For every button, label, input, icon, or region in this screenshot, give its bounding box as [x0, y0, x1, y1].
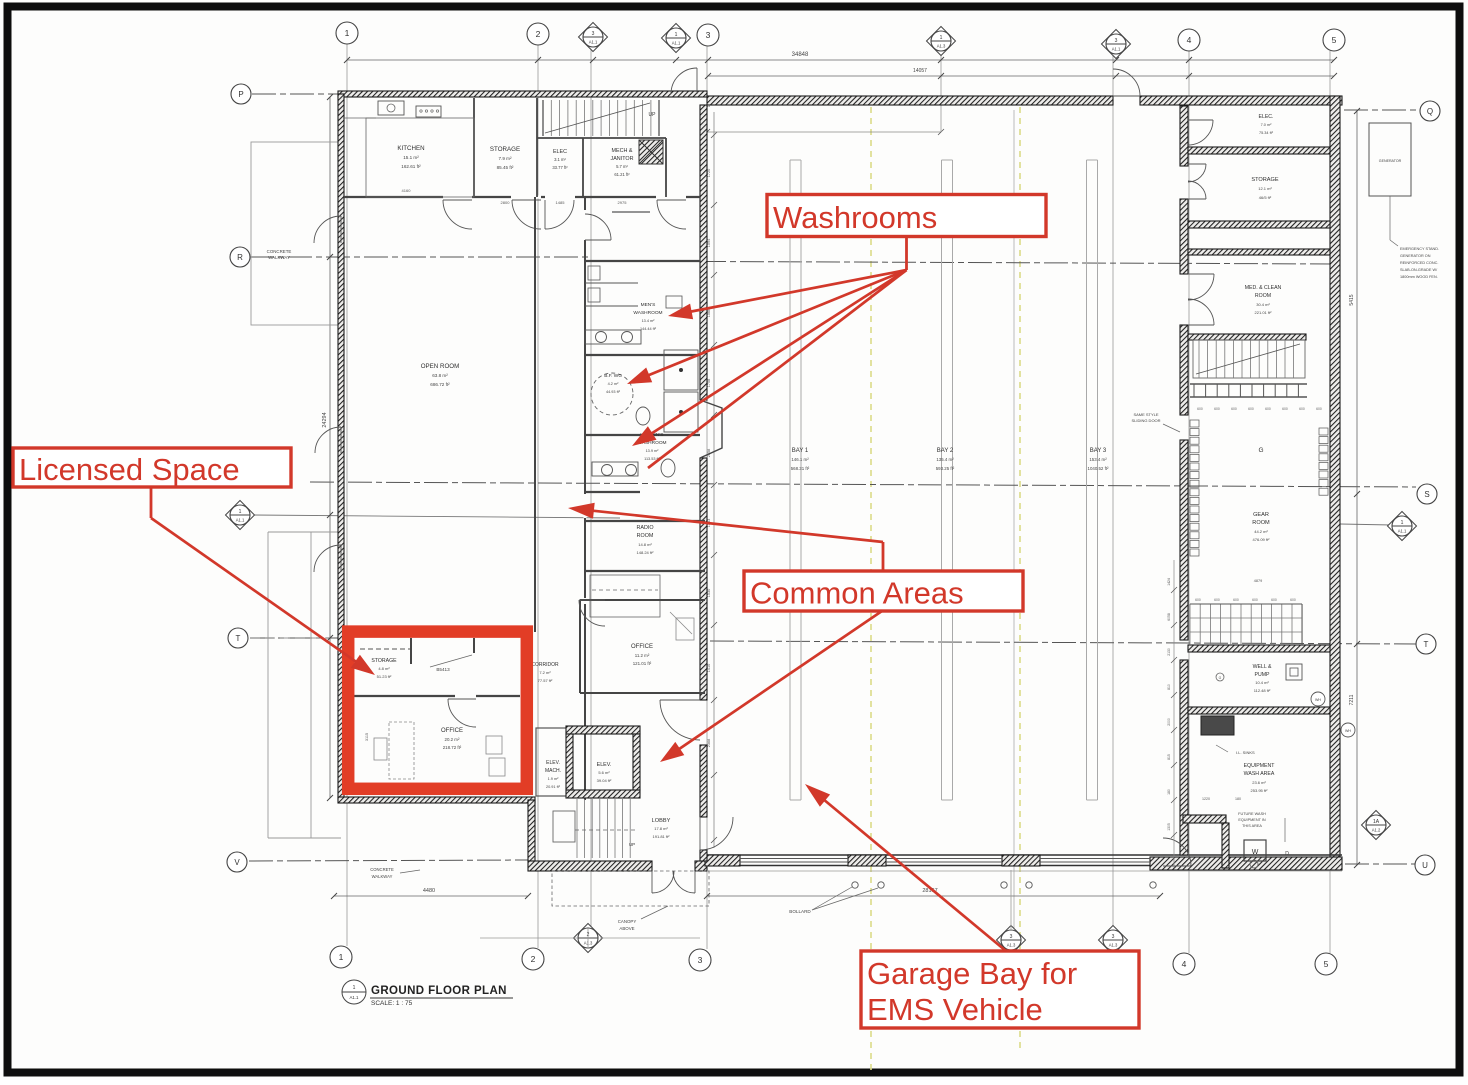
svg-text:75.34 ft²: 75.34 ft² [1259, 131, 1274, 135]
svg-text:1220: 1220 [1202, 797, 1210, 801]
svg-text:1485: 1485 [556, 200, 566, 205]
svg-text:BAY 2: BAY 2 [937, 448, 954, 454]
svg-text:1305: 1305 [1167, 823, 1171, 831]
svg-text:A1.3: A1.3 [1007, 943, 1016, 948]
svg-text:44.93 ft²: 44.93 ft² [606, 390, 621, 394]
svg-text:1720: 1720 [707, 169, 711, 177]
svg-text:600: 600 [1316, 407, 1322, 411]
svg-text:T: T [1424, 640, 1429, 649]
svg-text:BOLLARD: BOLLARD [789, 909, 811, 914]
svg-text:CONCRETE: CONCRETE [370, 867, 394, 872]
svg-text:7.2 m²: 7.2 m² [539, 670, 551, 675]
svg-text:44.2 m²: 44.2 m² [1254, 529, 1268, 534]
svg-text:11.2 m²: 11.2 m² [635, 653, 650, 658]
svg-text:P: P [238, 90, 243, 99]
svg-text:A1.3: A1.3 [937, 44, 946, 49]
svg-text:A1.1: A1.1 [1112, 47, 1121, 52]
svg-text:CORRIDOR: CORRIDOR [531, 662, 559, 668]
svg-text:WH: WH [1315, 698, 1321, 702]
svg-text:1410: 1410 [707, 664, 711, 672]
svg-text:4879: 4879 [1254, 579, 1262, 583]
svg-text:G: G [1258, 447, 1263, 454]
svg-text:63.8 m²: 63.8 m² [432, 373, 448, 378]
svg-text:1: 1 [345, 28, 350, 38]
svg-text:218.72 ft²: 218.72 ft² [443, 745, 462, 750]
svg-text:1068: 1068 [707, 309, 711, 317]
svg-text:WASHROOM: WASHROOM [633, 310, 662, 316]
svg-text:4.8 m²: 4.8 m² [378, 666, 390, 671]
svg-text:1040.52 ft²: 1040.52 ft² [1088, 466, 1110, 471]
svg-text:5.7 m²: 5.7 m² [616, 164, 628, 169]
svg-text:600: 600 [1214, 598, 1220, 602]
svg-text:ELEV.: ELEV. [546, 760, 560, 766]
svg-text:OFFICE: OFFICE [631, 644, 653, 650]
svg-text:180: 180 [1167, 789, 1171, 795]
svg-text:135.4 m²: 135.4 m² [936, 457, 954, 462]
svg-text:ELEC: ELEC [553, 149, 567, 155]
svg-text:SAME STYLE: SAME STYLE [1133, 412, 1158, 417]
svg-text:T: T [236, 634, 241, 643]
svg-text:GENERATOR ON: GENERATOR ON [1400, 254, 1431, 258]
svg-text:WH: WH [1345, 729, 1351, 733]
svg-text:Garage Bay for: Garage Bay for [867, 956, 1077, 991]
svg-text:WELL &: WELL & [1253, 664, 1272, 670]
svg-text:1: 1 [239, 509, 242, 515]
svg-text:RADIO: RADIO [636, 525, 653, 531]
svg-text:34848: 34848 [792, 52, 809, 58]
svg-text:810: 810 [1167, 684, 1171, 690]
svg-text:1: 1 [1401, 520, 1404, 526]
svg-text:2368: 2368 [707, 739, 711, 747]
svg-text:2: 2 [531, 954, 536, 964]
svg-text:B5413: B5413 [436, 667, 450, 672]
svg-text:815: 815 [1167, 754, 1171, 760]
svg-text:1708: 1708 [707, 379, 711, 387]
svg-text:CONCRETE: CONCRETE [267, 249, 292, 254]
svg-text:568.31 ft²: 568.31 ft² [791, 466, 810, 471]
svg-text:I.L. SINKS: I.L. SINKS [1236, 750, 1255, 755]
svg-text:1424: 1424 [1167, 578, 1171, 586]
svg-text:EQUIPMENT: EQUIPMENT [1244, 763, 1276, 769]
svg-text:600: 600 [1252, 598, 1258, 602]
svg-text:15.1 m²: 15.1 m² [403, 155, 419, 160]
svg-text:STORAGE: STORAGE [371, 658, 397, 664]
svg-text:3.1 m²: 3.1 m² [554, 157, 566, 162]
svg-text:61.21 ft²: 61.21 ft² [614, 172, 630, 177]
svg-text:V: V [234, 858, 240, 867]
svg-text:5: 5 [1324, 959, 1329, 969]
svg-text:148.24 ft²: 148.24 ft² [637, 550, 655, 555]
svg-text:5.6 m²: 5.6 m² [598, 770, 610, 775]
svg-text:EQUIPMENT IN: EQUIPMENT IN [1238, 818, 1266, 822]
svg-text:7.9 m²: 7.9 m² [498, 156, 511, 161]
svg-text:1A: 1A [1373, 819, 1380, 825]
svg-text:BAY 1: BAY 1 [792, 448, 809, 454]
svg-text:3: 3 [1115, 38, 1118, 44]
svg-text:600: 600 [1214, 407, 1220, 411]
svg-text:2975: 2975 [618, 200, 628, 205]
svg-text:600: 600 [1299, 407, 1305, 411]
svg-text:REINFORCED CONC.: REINFORCED CONC. [1400, 261, 1438, 265]
svg-text:121.01 ft²: 121.01 ft² [633, 661, 652, 666]
svg-text:3: 3 [592, 31, 595, 37]
svg-text:13.9 m²: 13.9 m² [646, 449, 660, 453]
svg-text:OFFICE: OFFICE [441, 728, 463, 734]
svg-text:600: 600 [1271, 598, 1277, 602]
svg-text:THIS AREA: THIS AREA [1242, 824, 1262, 828]
svg-text:1: 1 [339, 952, 344, 962]
svg-text:OPEN ROOM: OPEN ROOM [421, 363, 460, 370]
svg-text:23.6 m²: 23.6 m² [1252, 780, 1266, 785]
svg-text:A1.1: A1.1 [236, 518, 245, 523]
svg-text:KITCHEN: KITCHEN [397, 145, 424, 152]
svg-text:1530: 1530 [707, 589, 711, 597]
svg-text:BAY 3: BAY 3 [1090, 448, 1107, 454]
svg-text:SCALE: 1 : 75: SCALE: 1 : 75 [371, 1000, 413, 1007]
svg-text:2: 2 [536, 29, 541, 39]
svg-text:SLAB-ON-GRADE W/: SLAB-ON-GRADE W/ [1400, 268, 1438, 272]
svg-text:7.0 m²: 7.0 m² [1261, 123, 1272, 127]
svg-text:ROOM: ROOM [637, 533, 654, 539]
svg-text:A1.1: A1.1 [589, 40, 598, 45]
svg-text:SLIDING DOOR: SLIDING DOOR [1131, 418, 1160, 423]
svg-text:14.8 m²: 14.8 m² [638, 542, 652, 547]
svg-text:39.04 ft²: 39.04 ft² [597, 778, 612, 783]
svg-text:Washrooms: Washrooms [773, 200, 937, 235]
svg-text:B.F. WC: B.F. WC [604, 373, 622, 379]
svg-text:JANITOR: JANITOR [611, 156, 634, 162]
svg-text:U: U [1422, 861, 1428, 870]
svg-text:4: 4 [1187, 35, 1192, 45]
svg-text:180: 180 [1235, 797, 1241, 801]
svg-text:221.01 ft²: 221.01 ft² [1255, 310, 1273, 315]
svg-text:600: 600 [1290, 598, 1296, 602]
svg-text:686.72 ft²: 686.72 ft² [430, 382, 450, 387]
svg-text:MACH.: MACH. [545, 768, 561, 774]
svg-text:STORAGE: STORAGE [1251, 177, 1279, 183]
svg-text:ELEC.: ELEC. [1259, 114, 1274, 120]
svg-text:UP: UP [629, 842, 635, 847]
svg-text:1.9 m²: 1.9 m² [548, 777, 559, 781]
svg-text:17.8 m²: 17.8 m² [654, 826, 668, 831]
svg-text:112.48 ft²: 112.48 ft² [1254, 688, 1271, 693]
svg-text:7211: 7211 [1349, 694, 1355, 705]
svg-text:85.45 ft²: 85.45 ft² [497, 165, 514, 170]
svg-text:GENERATOR: GENERATOR [1379, 159, 1402, 163]
svg-text:1: 1 [353, 985, 356, 991]
svg-text:LOBBY: LOBBY [652, 818, 671, 824]
svg-text:77.57 ft²: 77.57 ft² [538, 678, 553, 683]
svg-text:3115: 3115 [365, 733, 369, 741]
svg-text:2000: 2000 [1167, 718, 1171, 726]
svg-text:A1.1: A1.1 [349, 995, 359, 1000]
svg-text:MECH &: MECH & [612, 148, 633, 154]
svg-text:33.77 ft²: 33.77 ft² [552, 165, 568, 170]
svg-text:20.2 m²: 20.2 m² [445, 737, 460, 742]
svg-text:D: D [1285, 851, 1289, 857]
svg-text:4160: 4160 [402, 188, 412, 193]
svg-text:UP: UP [649, 112, 657, 118]
svg-text:2130: 2130 [1167, 648, 1171, 656]
svg-text:12.1 m²: 12.1 m² [1258, 186, 1272, 191]
svg-text:WALKWAY: WALKWAY [372, 874, 393, 879]
svg-text:1800mm WOOD FEN.: 1800mm WOOD FEN. [1400, 275, 1438, 279]
svg-text:600: 600 [1265, 407, 1271, 411]
svg-text:MED. & CLEAN: MED. & CLEAN [1245, 285, 1282, 291]
svg-text:G: G [1219, 676, 1222, 680]
svg-text:46/5 ft²: 46/5 ft² [1259, 195, 1272, 200]
svg-text:WASH AREA: WASH AREA [1244, 771, 1275, 777]
svg-text:4: 4 [1182, 959, 1187, 969]
svg-text:3: 3 [1112, 934, 1115, 940]
svg-text:191.81 ft²: 191.81 ft² [653, 834, 671, 839]
svg-text:51.23 ft²: 51.23 ft² [377, 674, 392, 679]
svg-text:476.09 ft²: 476.09 ft² [1253, 537, 1271, 542]
svg-text:ROOM: ROOM [1252, 520, 1270, 526]
svg-text:S: S [1424, 490, 1429, 499]
svg-text:593.25 ft²: 593.25 ft² [936, 466, 955, 471]
svg-text:PUMP: PUMP [1255, 672, 1271, 678]
svg-text:1: 1 [940, 35, 943, 41]
svg-text:A1.1: A1.1 [1398, 529, 1407, 534]
svg-text:ELEV.: ELEV. [597, 762, 612, 768]
svg-text:EMERGENCY STAND.: EMERGENCY STAND. [1400, 247, 1439, 251]
svg-text:1094: 1094 [707, 239, 711, 247]
svg-text:162.61 ft²: 162.61 ft² [401, 164, 421, 169]
svg-text:20.91 ft²: 20.91 ft² [546, 785, 561, 789]
svg-text:2800: 2800 [501, 200, 511, 205]
svg-text:A1.2: A1.2 [1372, 828, 1381, 833]
svg-text:WALKWAY: WALKWAY [268, 255, 290, 260]
svg-text:Licensed Space: Licensed Space [19, 452, 240, 487]
svg-text:ROOM: ROOM [1255, 293, 1271, 299]
svg-text:600: 600 [1248, 407, 1254, 411]
svg-text:13.4 m²: 13.4 m² [642, 319, 656, 323]
svg-text:3: 3 [1010, 934, 1013, 940]
svg-text:30.4 m²: 30.4 m² [1256, 302, 1270, 307]
svg-text:W: W [1252, 849, 1259, 856]
svg-text:600: 600 [1197, 407, 1203, 411]
svg-text:Common Areas: Common Areas [750, 575, 964, 610]
svg-text:1: 1 [675, 32, 678, 38]
svg-text:GROUND FLOOR PLAN: GROUND FLOOR PLAN [371, 985, 507, 997]
svg-text:600: 600 [1233, 598, 1239, 602]
svg-text:EMS Vehicle: EMS Vehicle [867, 992, 1043, 1027]
svg-text:R: R [237, 253, 243, 262]
svg-text:146.1 m²: 146.1 m² [791, 457, 809, 462]
svg-text:STORAGE: STORAGE [490, 146, 520, 153]
svg-text:A1.1: A1.1 [672, 41, 681, 46]
svg-text:4480: 4480 [423, 888, 435, 894]
svg-text:CANOPY: CANOPY [618, 919, 637, 924]
svg-text:600: 600 [1282, 407, 1288, 411]
svg-text:144.44 ft²: 144.44 ft² [640, 327, 657, 331]
svg-text:5: 5 [1332, 35, 1337, 45]
svg-text:600: 600 [1195, 598, 1201, 602]
svg-text:4.2 m²: 4.2 m² [608, 382, 619, 386]
svg-text:3: 3 [698, 955, 703, 965]
svg-text:10.4 m²: 10.4 m² [1255, 680, 1269, 685]
svg-text:FUTURE WASH: FUTURE WASH [1238, 812, 1266, 816]
svg-text:GEAR: GEAR [1253, 512, 1269, 518]
svg-text:6058: 6058 [1167, 613, 1171, 621]
svg-text:A1.3: A1.3 [1109, 943, 1118, 948]
svg-text:3: 3 [706, 30, 711, 40]
svg-text:253.95 ft²: 253.95 ft² [1251, 788, 1269, 793]
svg-text:MEN'S: MEN'S [641, 302, 656, 308]
svg-text:14057: 14057 [913, 68, 927, 74]
svg-text:ABOVE: ABOVE [619, 926, 634, 931]
svg-text:24294: 24294 [322, 412, 328, 427]
svg-text:5415: 5415 [1349, 294, 1355, 305]
svg-text:600: 600 [1231, 407, 1237, 411]
svg-text:153.4 m²: 153.4 m² [1089, 457, 1107, 462]
svg-text:Q: Q [1427, 107, 1433, 116]
